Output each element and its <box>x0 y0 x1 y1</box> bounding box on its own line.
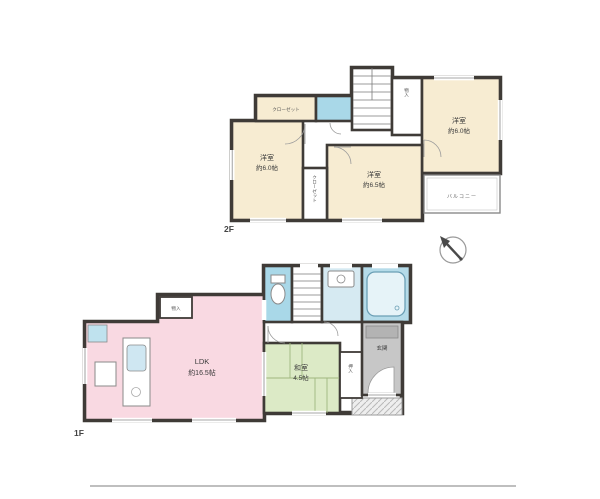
balcony-label: バルコニー <box>447 194 477 200</box>
1f-porch <box>352 398 402 415</box>
floorplan-canvas: バルコニー <box>0 0 600 499</box>
2f-room-middle-name: 洋室 <box>367 170 381 179</box>
1f-washitsu-size: 4.5帖 <box>293 373 309 382</box>
2f-room-right <box>422 78 500 173</box>
2f-balcony: バルコニー <box>424 175 500 213</box>
2f-room-middle-size: 約6.5帖 <box>363 180 386 189</box>
2f-storage-right-label: 物入 <box>404 87 410 98</box>
2f-room-right-name: 洋室 <box>452 116 466 125</box>
1f-ldk-name: LDK <box>195 357 210 366</box>
1f-washitsu-name: 和室 <box>294 363 308 372</box>
2f-closet-strip-label: クローゼット <box>312 175 318 203</box>
toilet-fixture <box>271 275 285 304</box>
refrigerator <box>88 325 107 342</box>
2f-room-left-size: 約6.0帖 <box>256 163 279 172</box>
washbasin-fixture <box>328 271 354 287</box>
2f-floor-label: 2F <box>224 224 234 234</box>
compass-icon <box>440 236 466 263</box>
2f-storage-right <box>392 78 422 135</box>
floor-1f: 物入 <box>74 264 410 438</box>
1f-ldk-size: 約16.5帖 <box>188 368 216 377</box>
floorplan-page: バルコニー <box>0 0 600 499</box>
2f-room-right-size: 約6.0帖 <box>448 126 471 135</box>
1f-oshiire <box>340 352 362 398</box>
2f-toilet <box>316 96 352 121</box>
2f-room-left-name: 洋室 <box>260 153 274 162</box>
kitchen-sink <box>127 345 146 371</box>
entrance-label: 玄関 <box>376 344 388 352</box>
2f-closet-top-label: クローゼット <box>272 106 300 113</box>
floor-2f: バルコニー <box>224 68 502 234</box>
1f-entrance: 玄関 <box>362 322 402 397</box>
bathtub-fixture <box>367 272 405 316</box>
1f-oshiire-label: 押入 <box>348 363 354 374</box>
1f-floor-label: 1F <box>74 428 84 438</box>
1f-storage-nook-label: 物入 <box>171 305 181 312</box>
kitchen-cupboard <box>95 362 116 386</box>
